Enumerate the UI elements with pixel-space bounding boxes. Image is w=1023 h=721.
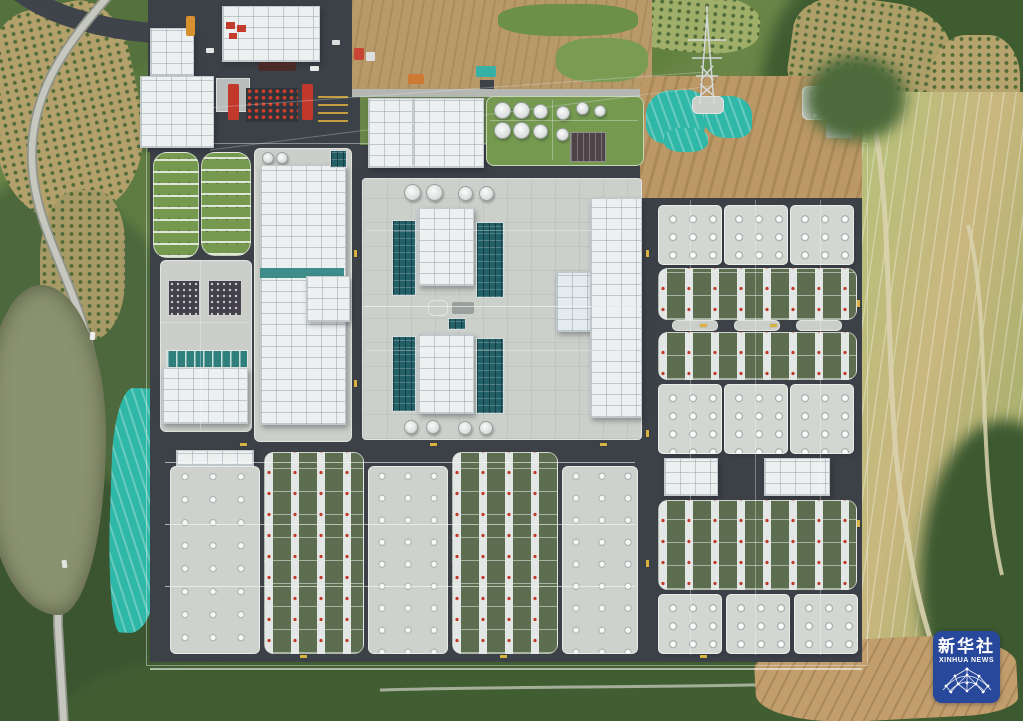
- watermark-agency-cn: 新华社: [933, 631, 1000, 656]
- network-globe-icon: [941, 666, 993, 694]
- xinhua-watermark: 新华社 XINHUA NEWS: [933, 631, 1000, 703]
- transmission-tower-and-wires: [0, 0, 1023, 721]
- aerial-photo-scene: 新华社 XINHUA NEWS: [0, 0, 1023, 721]
- watermark-agency-en: XINHUA NEWS: [933, 657, 1000, 664]
